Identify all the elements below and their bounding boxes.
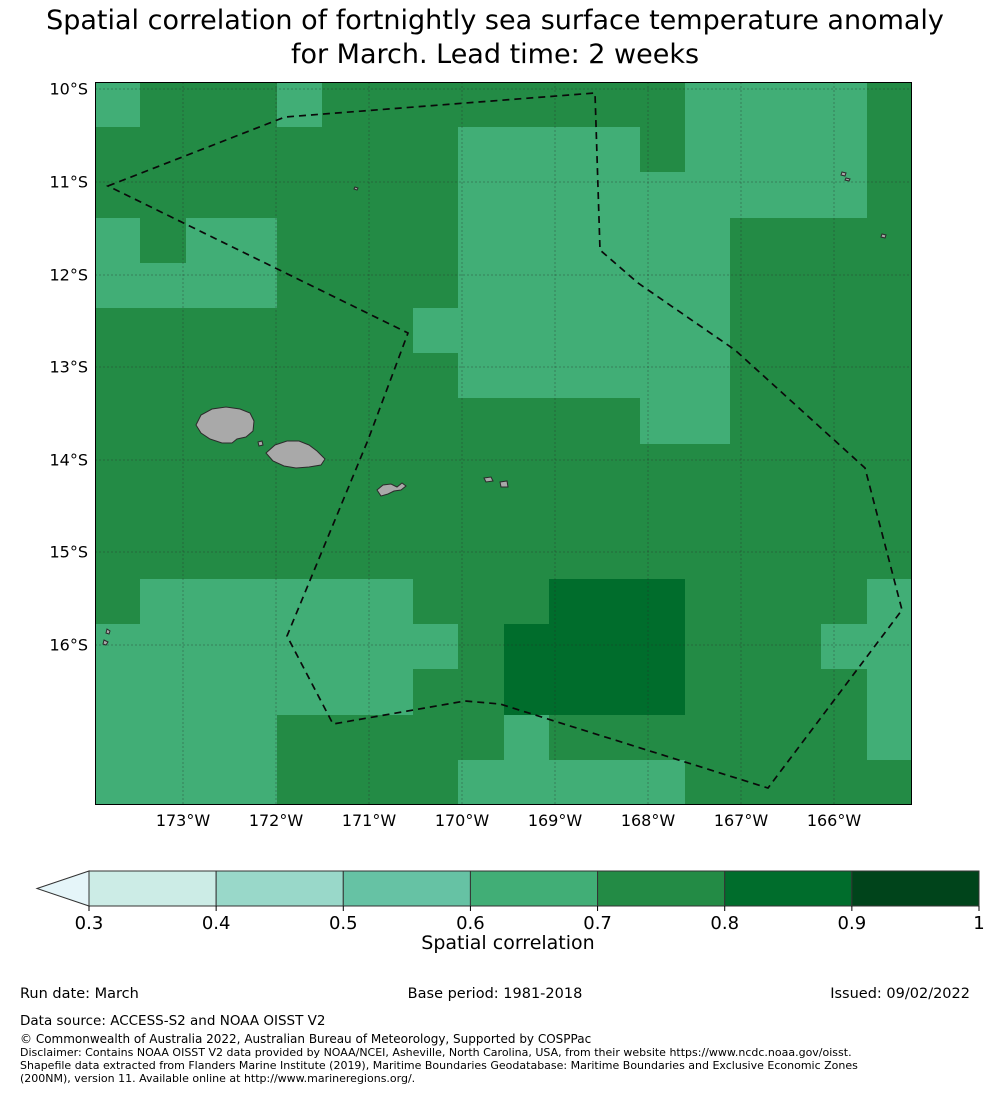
island-speck-166w-a (841, 172, 846, 176)
island-speck-166w-b (845, 178, 850, 181)
chart-title: Spatial correlation of fortnightly sea s… (46, 4, 944, 72)
island-tutuila (377, 483, 406, 496)
base-period-text: Base period: 1981-2018 (408, 986, 583, 1002)
issued-text: Issued: 09/02/2022 (830, 986, 970, 1002)
colorbar: 0.30.40.50.60.70.80.91 (0, 860, 990, 932)
x-tick-label: 171°W (342, 811, 396, 830)
map-frame (96, 83, 912, 805)
run-date-text: Run date: March (20, 986, 139, 1002)
x-tick-label: 172°W (249, 811, 303, 830)
y-tick-label: 10°S (49, 80, 88, 99)
disclaimer-line1: Disclaimer: Contains NOAA OISST V2 data … (20, 1046, 852, 1059)
y-tick-label: 15°S (49, 543, 88, 562)
chart-title-line1: Spatial correlation of fortnightly sea s… (46, 4, 944, 38)
colorbar-extend-triangle (37, 871, 89, 906)
colorbar-tick-label: 0.7 (583, 913, 612, 932)
island-reef-16s (103, 640, 108, 645)
map-overlay (95, 82, 912, 805)
x-tick-label: 168°W (621, 811, 675, 830)
colorbar-tick-label: 0.5 (329, 913, 358, 932)
island-speck-165w (881, 234, 886, 238)
colorbar-segment (725, 871, 852, 906)
y-tick-label: 16°S (49, 636, 88, 655)
colorbar-segment (89, 871, 216, 906)
y-tick-label: 12°S (49, 266, 88, 285)
chart-title-line2: for March. Lead time: 2 weeks (46, 38, 944, 72)
colorbar-segment (598, 871, 725, 906)
island-speck-171w (354, 187, 358, 190)
colorbar-tick-label: 1 (973, 913, 984, 932)
map-panel (95, 82, 912, 805)
island-savaii (196, 407, 254, 443)
colorbar-segment (216, 871, 343, 906)
colorbar-segment (852, 871, 979, 906)
disclaimer-line2: Shapefile data extracted from Flanders M… (20, 1059, 858, 1072)
y-tick-label: 13°S (49, 358, 88, 377)
colorbar-tick-label: 0.6 (456, 913, 485, 932)
x-tick-label: 169°W (528, 811, 582, 830)
colorbar-tick-label: 0.4 (202, 913, 231, 932)
x-tick-label: 173°W (156, 811, 210, 830)
island-tau (500, 481, 508, 487)
island-upolu (266, 441, 325, 468)
x-tick-label: 166°W (807, 811, 861, 830)
colorbar-tick-label: 0.9 (838, 913, 867, 932)
colorbar-segment (470, 871, 597, 906)
figure-page: { "title": { "line1": "Spatial correlati… (0, 0, 990, 1095)
colorbar-tick-label: 0.3 (75, 913, 104, 932)
island-tafahi (106, 629, 110, 634)
copyright-text: © Commonwealth of Australia 2022, Austra… (20, 1032, 591, 1046)
island-ofu-olosega (484, 477, 493, 482)
colorbar-segment (343, 871, 470, 906)
colorbar-label: Spatial correlation (421, 932, 594, 954)
y-tick-label: 14°S (49, 451, 88, 470)
island-manono (258, 441, 263, 446)
colorbar-tick-label: 0.8 (710, 913, 739, 932)
disclaimer-line3: (200NM), version 11. Available online at… (20, 1072, 415, 1085)
x-tick-label: 170°W (435, 811, 489, 830)
data-source-text: Data source: ACCESS-S2 and NOAA OISST V2 (20, 1013, 325, 1029)
x-tick-label: 167°W (714, 811, 768, 830)
y-tick-label: 11°S (49, 173, 88, 192)
